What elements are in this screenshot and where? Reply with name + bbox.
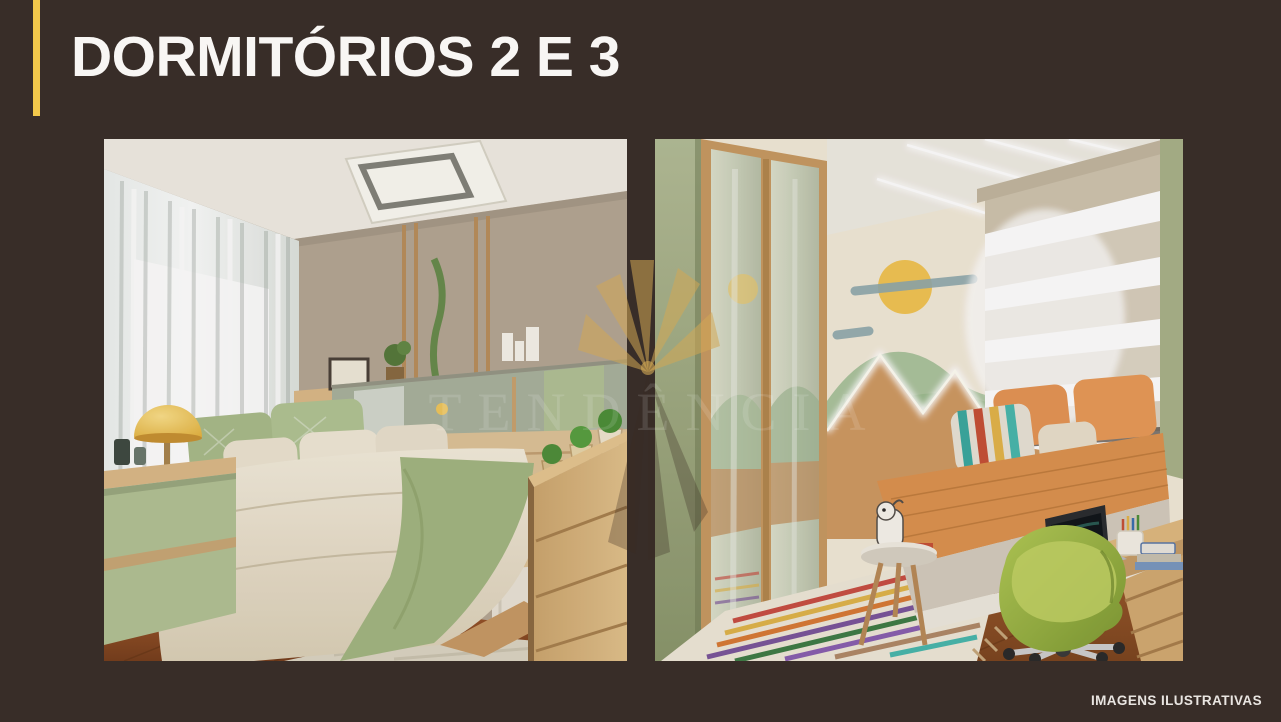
- page-title: DORMITÓRIOS 2 E 3: [71, 24, 620, 90]
- bedroom-3-scene: [655, 139, 1183, 661]
- vignette: [655, 139, 1183, 661]
- bedroom-2-render: [104, 139, 627, 661]
- bedroom-3-render: [655, 139, 1183, 661]
- title-accent-bar: [33, 0, 40, 116]
- bedroom-2-scene: [104, 139, 627, 661]
- vignette: [104, 139, 627, 661]
- disclaimer-text: IMAGENS ILUSTRATIVAS: [1091, 693, 1262, 708]
- slide: DORMITÓRIOS 2 E 3: [0, 0, 1281, 717]
